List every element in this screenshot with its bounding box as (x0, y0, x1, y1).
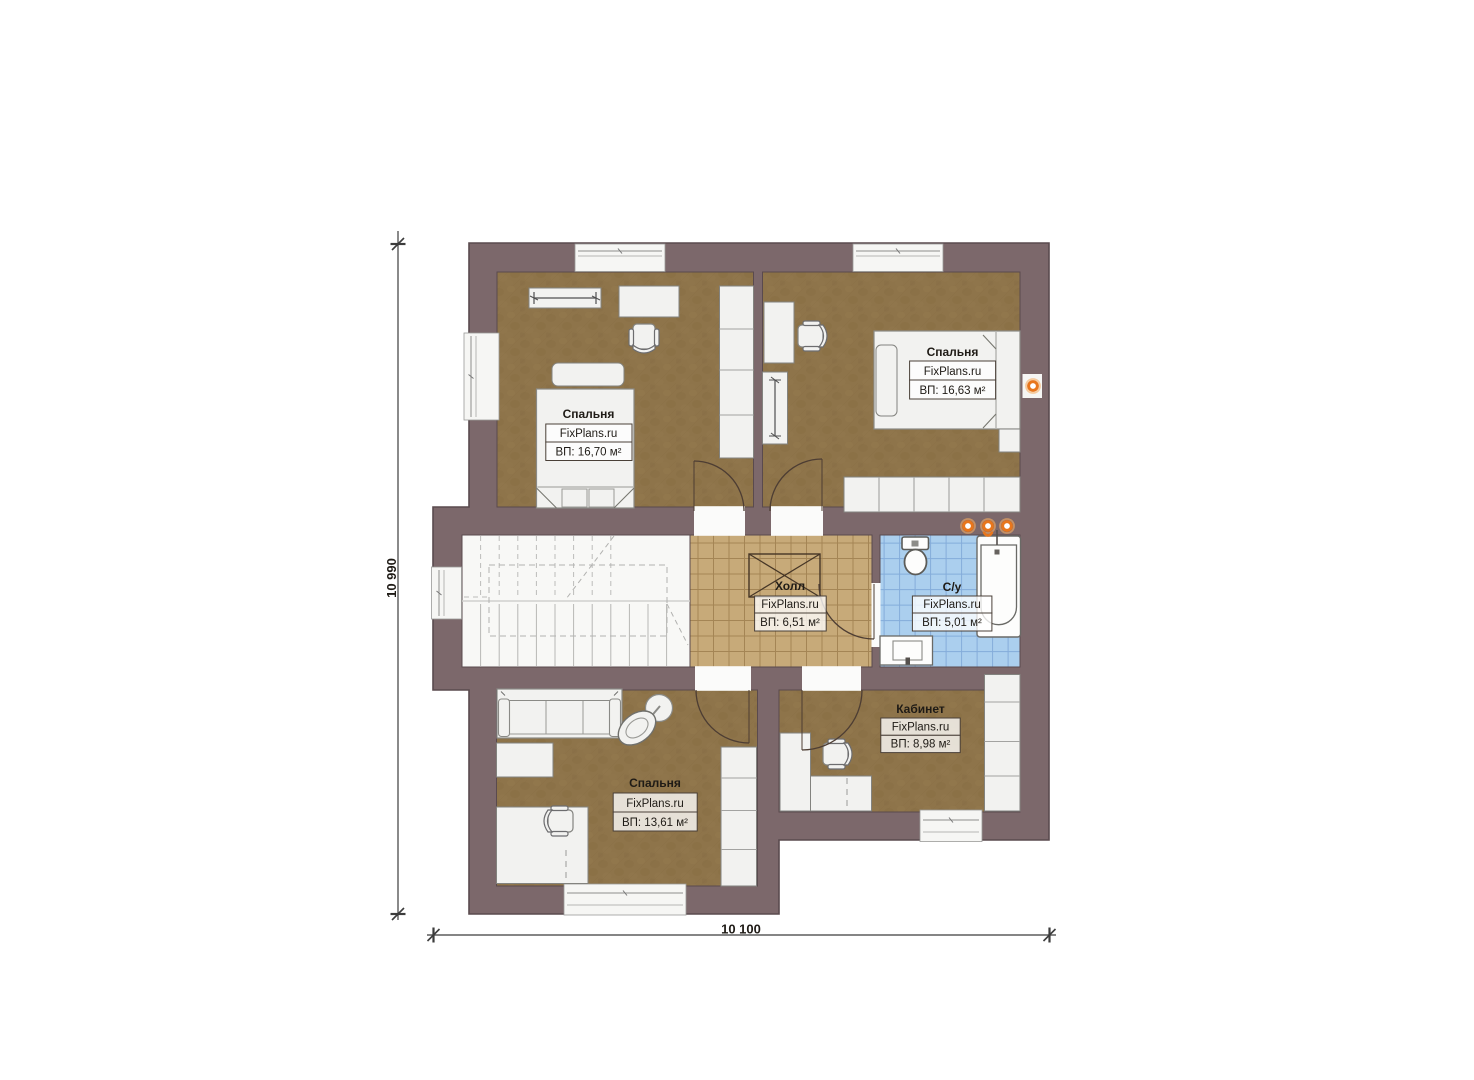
svg-text:FixPlans.ru: FixPlans.ru (892, 721, 950, 733)
svg-text:FixPlans.ru: FixPlans.ru (626, 798, 684, 810)
svg-text:ВП: 16,70 м²: ВП: 16,70 м² (555, 447, 621, 459)
svg-text:FixPlans.ru: FixPlans.ru (761, 599, 819, 611)
svg-text:Холл: Холл (775, 579, 805, 593)
svg-text:ВП: 13,61 м²: ВП: 13,61 м² (622, 817, 688, 829)
svg-text:ВП: 5,01 м²: ВП: 5,01 м² (922, 617, 982, 629)
svg-text:10 990: 10 990 (384, 558, 399, 598)
svg-text:10 100: 10 100 (721, 922, 761, 937)
svg-text:ВП: 6,51 м²: ВП: 6,51 м² (760, 617, 820, 629)
svg-text:Спальня: Спальня (927, 345, 979, 359)
svg-text:ВП: 8,98 м²: ВП: 8,98 м² (891, 739, 951, 751)
svg-text:Спальня: Спальня (629, 776, 681, 790)
svg-text:FixPlans.ru: FixPlans.ru (560, 428, 618, 440)
svg-text:FixPlans.ru: FixPlans.ru (924, 366, 982, 378)
svg-text:Кабинет: Кабинет (896, 702, 945, 716)
svg-text:FixPlans.ru: FixPlans.ru (923, 599, 981, 611)
svg-text:ВП: 16,63 м²: ВП: 16,63 м² (919, 385, 985, 397)
svg-text:Спальня: Спальня (563, 407, 615, 421)
svg-text:С/у: С/у (943, 580, 962, 594)
